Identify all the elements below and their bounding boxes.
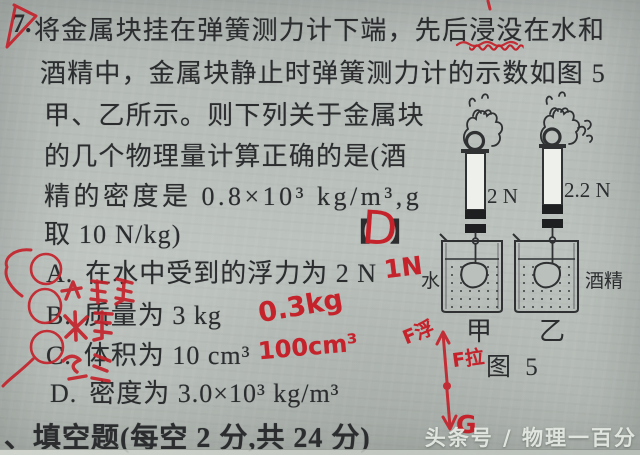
watermark: 头条号 / 物理一百分	[425, 422, 637, 452]
scribble-notes-2	[65, 312, 112, 340]
emphasis-tick	[488, 1, 490, 9]
scribble-notes-1	[62, 279, 133, 304]
circle-around-b	[29, 289, 61, 323]
circle-around-c	[31, 331, 63, 363]
red-pen-marks	[0, 0, 640, 455]
second-wavy-underline	[457, 42, 517, 46]
tail-below-c	[3, 359, 33, 386]
triangle-mark-question7	[7, 5, 36, 47]
force-diagram	[437, 332, 456, 429]
paper-bottom-edge	[0, 449, 640, 455]
textbook-page: 7. 将金属块挂在弹簧测力计下端，先后浸没在水和 酒精中，金属块静止时弹簧测力计…	[0, 0, 640, 455]
scribble-notes-3	[63, 355, 110, 381]
circle-around-a	[31, 254, 61, 284]
swoosh-left-of-a	[6, 250, 31, 296]
